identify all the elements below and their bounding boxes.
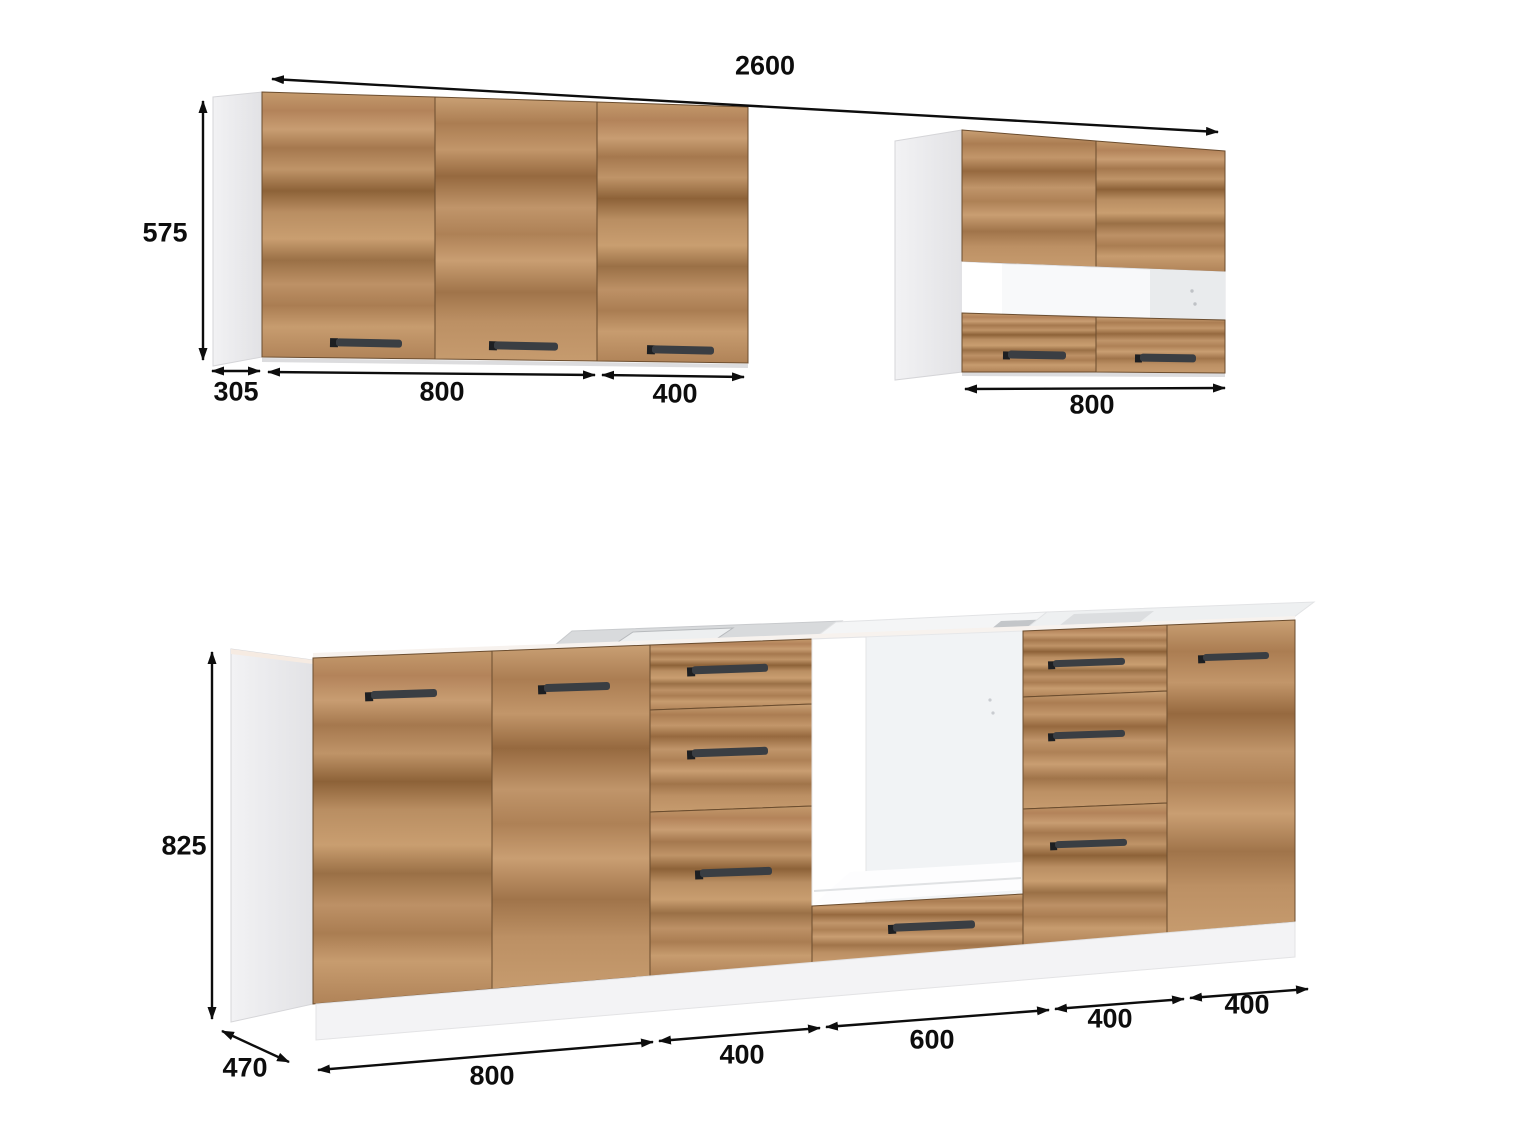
door — [262, 92, 435, 359]
door — [313, 651, 492, 1004]
dim-base-depth: 470 — [222, 1055, 267, 1082]
open-shelf-highlight — [962, 262, 1002, 315]
door — [492, 645, 650, 989]
dim-base-seg-800: 800 — [469, 1063, 514, 1090]
drawer-front — [650, 806, 812, 976]
drawer-front — [1096, 317, 1225, 373]
drawer-front — [650, 639, 812, 710]
dim-wall-right-width: 800 — [1069, 392, 1114, 419]
dim-base-seg-400-1: 400 — [719, 1042, 764, 1069]
door — [597, 102, 748, 363]
dim-wall-left-height: 575 — [142, 220, 187, 247]
wall-cabinet-right — [895, 130, 1225, 380]
door — [1096, 141, 1225, 272]
dim-base-seg-400-2: 400 — [1087, 1006, 1132, 1033]
dim-arrow-wall-left-400 — [602, 375, 744, 377]
dim-wall-left-depth: 305 — [213, 379, 258, 406]
door — [435, 97, 597, 361]
side-panel — [895, 130, 962, 380]
drawer-front — [962, 313, 1096, 372]
dim-base-seg-400-3: 400 — [1224, 992, 1269, 1019]
base-cabinet-run — [231, 602, 1314, 1040]
open-shelf-shade — [1150, 269, 1225, 320]
shelf-peg-hole — [1193, 302, 1196, 305]
cavity-peg-hole — [988, 698, 991, 701]
dim-wall-left-seg-800: 800 — [419, 379, 464, 406]
shelf-peg-hole — [1190, 289, 1193, 292]
dim-base-height: 825 — [161, 833, 206, 860]
dim-wall-left-seg-400: 400 — [652, 381, 697, 408]
drawer-front — [650, 704, 812, 812]
side-panel — [231, 649, 313, 1022]
side-panel — [213, 92, 262, 366]
drawing-shapes — [0, 0, 1516, 1137]
kitchen-dimension-drawing: 2600 575 305 800 400 800 825 470 800 400… — [0, 0, 1516, 1137]
door — [962, 130, 1096, 267]
dim-base-seg-600: 600 — [909, 1027, 954, 1054]
wall-cabinet-left — [213, 92, 748, 366]
drawer-front — [1023, 691, 1167, 809]
cabinet-shadow — [962, 374, 1225, 375]
oven-cavity-side — [812, 637, 866, 906]
dim-total-width: 2600 — [735, 53, 795, 80]
cavity-peg-hole — [991, 711, 994, 714]
dim-arrow-wall-left-800 — [268, 372, 595, 375]
drawer-front — [1023, 803, 1167, 945]
door — [1167, 620, 1295, 933]
